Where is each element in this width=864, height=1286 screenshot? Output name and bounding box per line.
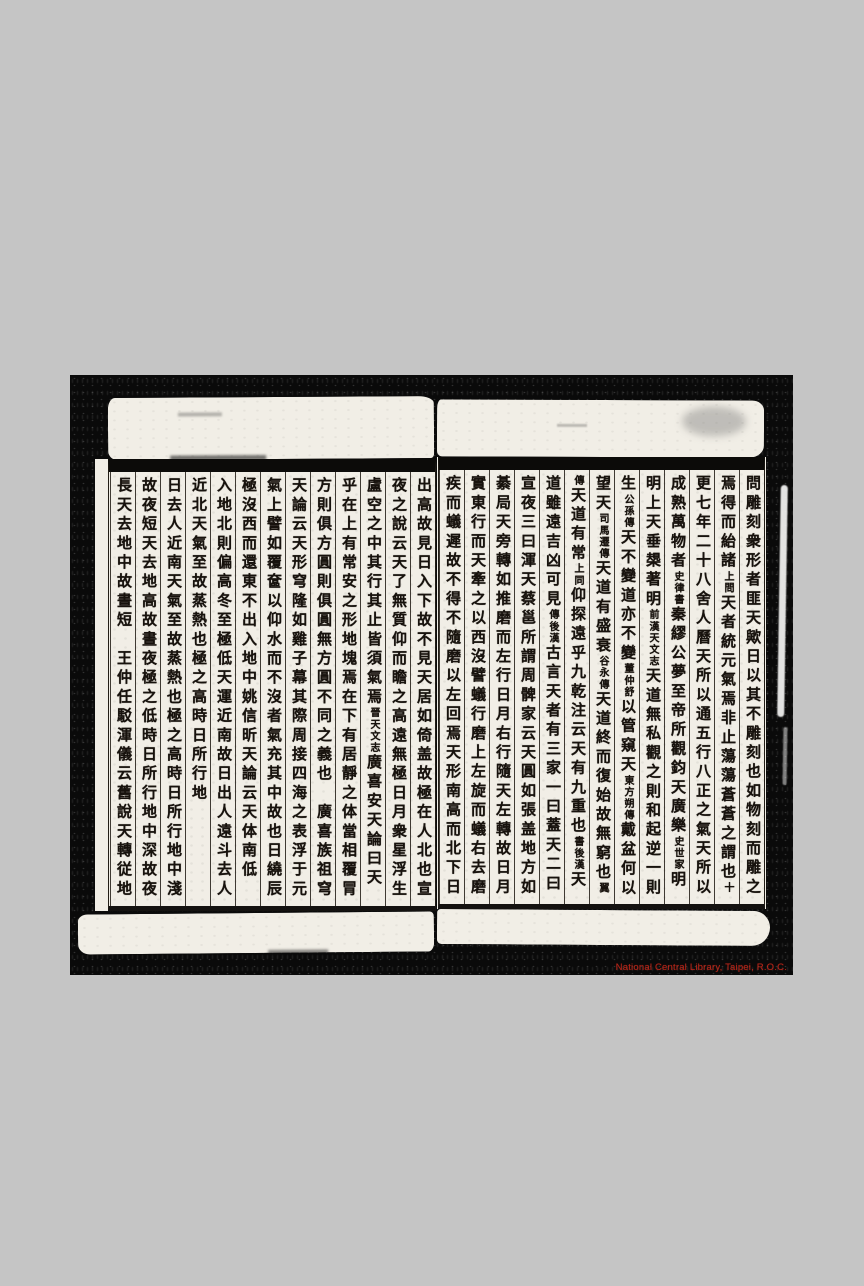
annotation-text: 史律書 [672,571,683,606]
library-watermark: National Central Library, Taipei, R.O.C. [616,962,787,973]
page-right: 問雕刻衆形者匪天歟日以其不雕刻也如物刻而雕之焉得而紿諸上問天者統元氣焉非止蕩蕩蒼… [437,457,766,909]
text-column: 長天去地中故晝短 王仲任駁渾儀云舊說天轉従地 [110,472,135,906]
annotation-text: 晉天文志 [368,707,379,753]
column-text: 近北天氣至故蒸熱也極之高時日所行地 [190,477,206,803]
column-text: 長天去地中故晝短 王仲任駁渾儀云舊說天轉従地 [115,477,131,899]
annotation-text: 上問 [722,571,733,594]
text-column: 宣夜三曰渾天蔡邕所謂周髀家云天圓如張盖地方如 [514,470,539,904]
column-text: 古言天者有三家一曰蓋天二曰 [544,644,560,894]
column-text: 宣夜三曰渾天蔡邕所謂周髀家云天圓如張盖地方如 [519,475,535,897]
column-text: 盧空之中其行其止皆須氣焉 [365,477,381,707]
column-text: 明上天垂槼著明 [644,475,660,609]
annotation-text: 傳 [572,475,583,487]
text-column: 問雕刻衆形者匪天歟日以其不雕刻也如物刻而雕之 [739,470,764,904]
column-text: 更七年二十八舍人曆天所以通五行八正之氣天所以 [694,475,710,897]
column-text: 戴盆何以 [619,821,635,898]
text-column: 夜之說云天了無質仰而瞻之高遠無極日月衆星浮生 [385,472,410,906]
text-column: 道雖遠吉凶可見傳後漢古言天者有三家一曰蓋天二曰 [539,470,564,904]
text-block-right: 問雕刻衆形者匪天歟日以其不雕刻也如物刻而雕之焉得而紿諸上問天者統元氣焉非止蕩蕩蒼… [438,457,765,909]
ink-smudge [178,412,222,416]
column-text: 故夜短天去地高故晝夜極之低時日所行地中深故夜 [140,477,156,899]
annotation-text: 書後漢 [572,836,583,871]
column-text: 極沒西而還東不出入地中姚信昕天論云天体南低 [240,477,256,880]
column-text: 望天 [594,475,610,513]
column-text: 天道終而復始故無窮也 [594,691,610,883]
column-text: 秦繆公夢至帝所觀鈞天廣樂 [669,606,685,836]
ink-smudge [268,949,328,955]
text-column: 傳天道有常上同仰探遠乎九乾注云天有九重也書後漢天 [564,470,589,904]
page-left: 出高故見日入下故不見天居如倚盖故極在人北也宣夜之說云天了無質仰而瞻之高遠無極日月… [95,459,436,911]
text-column: 出高故見日入下故不見天居如倚盖故極在人北也宣 [410,472,435,906]
column-text: 天論云天形穹隆如雞子幕其際周接四海之表浮于元 [290,477,306,899]
column-text: 問雕刻衆形者匪天歟日以其不雕刻也如物刻而雕之 [744,475,760,897]
annotation-text: 傳後漢 [547,609,558,644]
page-edge-highlight [783,727,788,785]
text-column: 成熟萬物者史律書秦繆公夢至帝所觀鈞天廣樂史世家明 [664,470,689,904]
column-text: 以管窺天 [619,698,635,775]
annotation-text: 司馬遷傳 [597,513,608,559]
text-column: 極沒西而還東不出入地中姚信昕天論云天体南低 [235,472,260,906]
text-column: 綦局天旁轉如推磨而左行日月右行隨天左轉故日月 [489,470,514,904]
annotation-text: 史世家 [672,836,683,871]
gray-backdrop: 出高故見日入下故不見天居如倚盖故極在人北也宣夜之說云天了無質仰而瞻之高遠無極日月… [0,0,864,1286]
annotation-text: 東方朔傳 [622,775,633,821]
column-text: 天者統元氣焉非止蕩蕩蒼蒼之謂也 [719,594,735,882]
text-column: 日去人近南天氣至故蒸熱也極之高時日所行地中淺 [160,472,185,906]
text-column: 故夜短天去地高故晝夜極之低時日所行地中深故夜 [135,472,160,906]
ink-smudge [557,424,587,427]
top-margin-strip-right [437,399,764,457]
text-column: 望天司馬遷傳天道有盛衰谷永傳天道終而復始故無窮也翼 [589,470,614,904]
annotation-text: 上同 [572,563,583,586]
column-text: 氣上譬如覆奩以仰水而不沒者氣充其中故也日繞辰 [265,477,281,899]
annotation-text: 翼 [597,883,608,895]
text-column: 方則俱方圓則俱圓無方圓不同之義也 廣喜族祖穹 [310,472,335,906]
annotation-text: 前漢天文志 [647,609,658,667]
text-column: 天論云天形穹隆如雞子幕其際周接四海之表浮于元 [285,472,310,906]
bottom-margin-strip-right [437,909,770,946]
column-text: 天道有常 [569,487,585,564]
text-column: 入地北則偏高冬至極低天運近南故日出人遠斗去人 [210,472,235,906]
column-text: 乎在上有常安之形地塊焉在下有居靜之体當相覆冐 [340,477,356,899]
column-text: 生 [619,475,635,494]
column-text: 天 [569,871,585,890]
text-column: 實東行而天牽之以西沒譬蟻行磨上左旋而蟻右去磨 [464,470,489,904]
column-text: 實東行而天牽之以西沒譬蟻行磨上左旋而蟻右去磨 [469,475,485,897]
text-column: 盧空之中其行其止皆須氣焉晉天文志廣喜安天論曰天確 [360,472,385,906]
column-text: 疾而蟻遲故不得不隨磨以左回焉天形南高而北下日 [444,475,460,897]
column-text: 成熟萬物者 [669,475,685,571]
text-block-left: 出高故見日入下故不見天居如倚盖故極在人北也宣夜之說云天了無質仰而瞻之高遠無極日月… [108,459,436,911]
column-text: 綦局天旁轉如推磨而左行日月右行隨天左轉故日月 [494,475,510,897]
gray-smudge [682,406,746,436]
column-text: 仰探遠乎九乾注云天有九重也 [569,587,585,837]
text-column: 近北天氣至故蒸熱也極之高時日所行地 [185,472,210,906]
top-margin-strip-left [108,396,434,460]
column-text: 入地北則偏高冬至極低天運近南故日出人遠斗去人 [215,477,231,899]
annotation-text: 谷永傳 [597,656,608,691]
column-text: 出高故見日入下故不見天居如倚盖故極在人北也宣 [415,477,431,899]
text-column: 明上天垂槼著明前漢天文志天道無私觀之則和起逆一則害 [639,470,664,904]
annotation-text: 公孫傳 [622,494,633,529]
text-column: 疾而蟻遲故不得不隨磨以左回焉天形南高而北下日 [439,470,464,904]
text-column: 生公孫傳天不變道亦不變董仲舒以管窺天東方朔傳戴盆何以 [614,470,639,904]
column-text: 道雖遠吉凶可見 [544,475,560,609]
text-column: 焉得而紿諸上問天者統元氣焉非止蕩蕩蒼蒼之謂也十交 [714,470,739,904]
column-text: 夜之說云天了無質仰而瞻之高遠無極日月衆星浮生 [390,477,406,899]
annotation-text: 董仲舒 [622,663,633,698]
book-scan: 出高故見日入下故不見天居如倚盖故極在人北也宣夜之說云天了無質仰而瞻之高遠無極日月… [70,375,793,975]
column-text: 明 [669,871,685,890]
bottom-margin-strip-left [78,911,434,954]
column-text: 方則俱方圓則俱圓無方圓不同之義也 廣喜族祖穹 [315,477,331,899]
column-text: 天道有盛衰 [594,560,610,656]
text-column: 氣上譬如覆奩以仰水而不沒者氣充其中故也日繞辰 [260,472,285,906]
text-column: 更七年二十八舍人曆天所以通五行八正之氣天所以 [689,470,714,904]
column-text: 天不變道亦不變 [619,529,635,663]
column-text: 焉得而紿諸 [719,475,735,571]
text-column: 乎在上有常安之形地塊焉在下有居靜之体當相覆冐 [335,472,360,906]
column-text: 日去人近南天氣至故蒸熱也極之高時日所行地中淺 [165,477,181,899]
page-edge-highlight [777,485,788,717]
